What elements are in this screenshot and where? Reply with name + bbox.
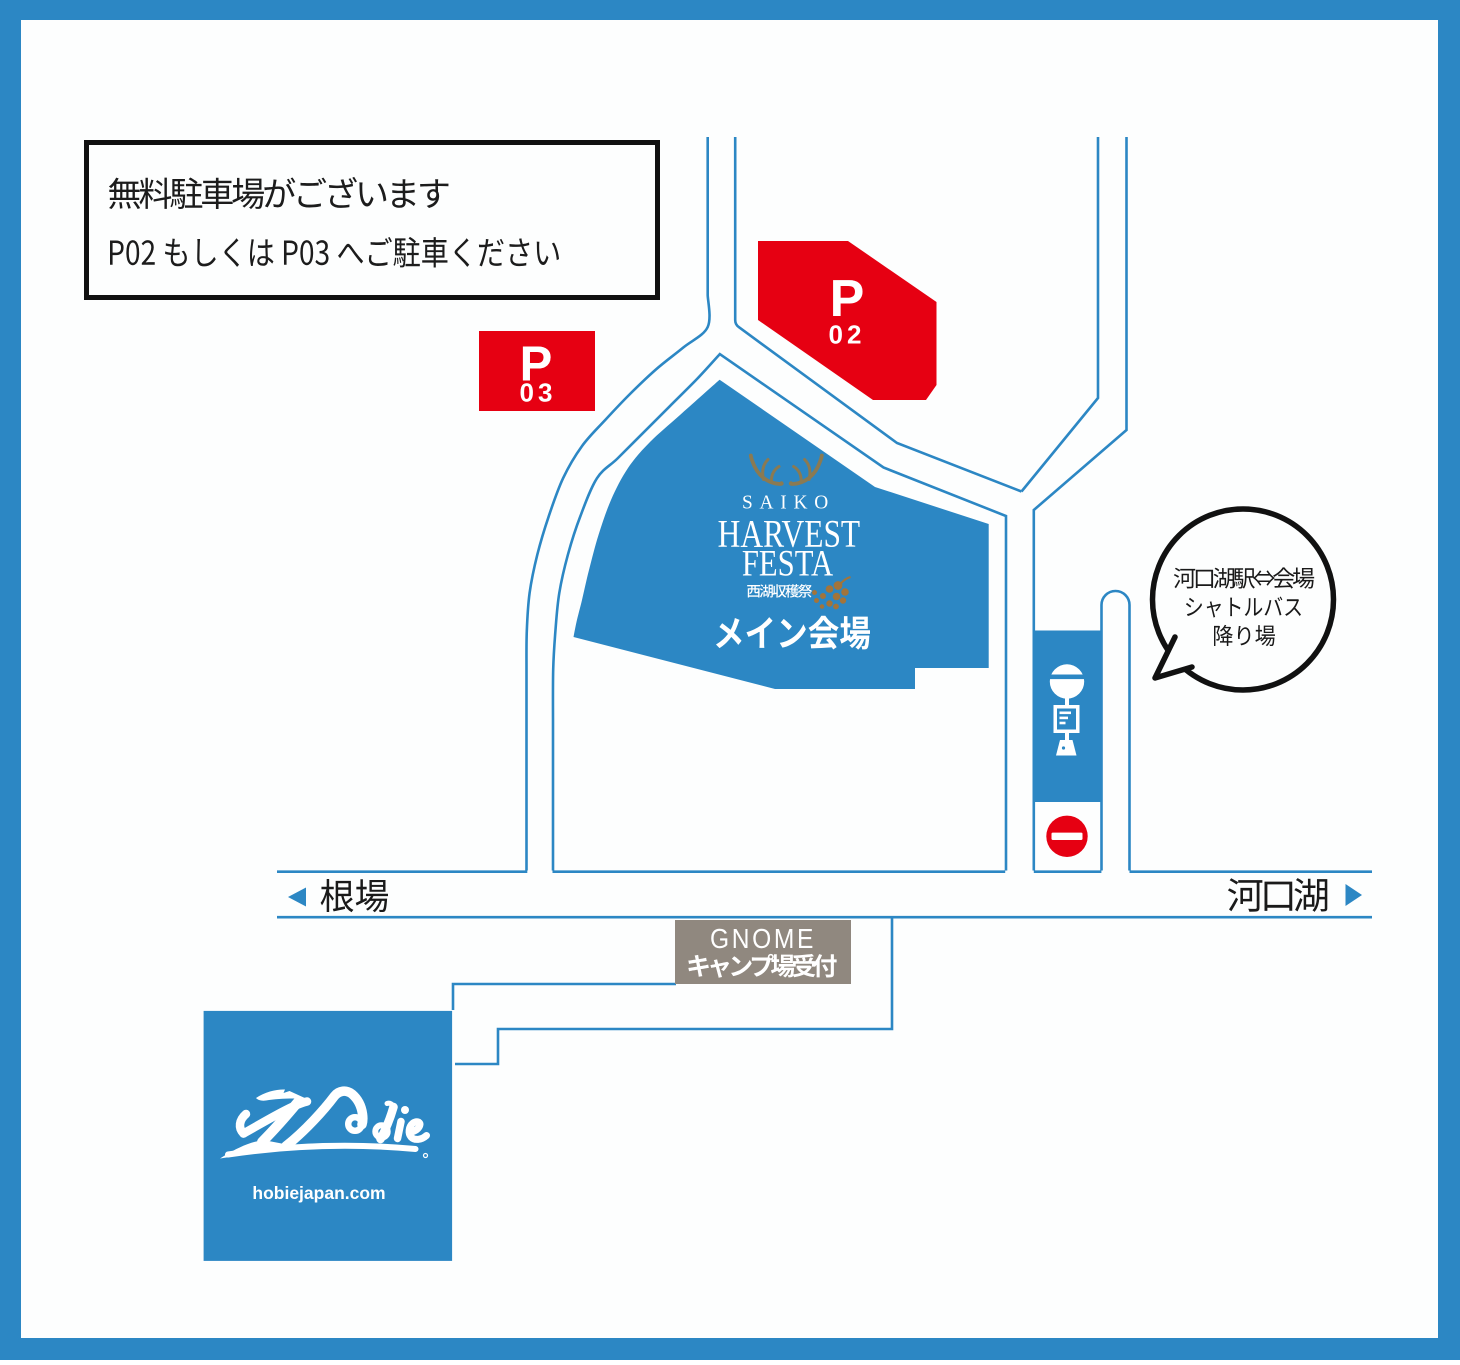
svg-text:hobiejapan.com: hobiejapan.com (252, 1183, 385, 1203)
svg-text:02: 02 (829, 320, 866, 350)
svg-text:FESTA: FESTA (742, 543, 833, 584)
svg-text:SAIKO: SAIKO (742, 491, 835, 513)
svg-text:03: 03 (520, 378, 557, 408)
svg-text:GNOME: GNOME (710, 923, 816, 954)
